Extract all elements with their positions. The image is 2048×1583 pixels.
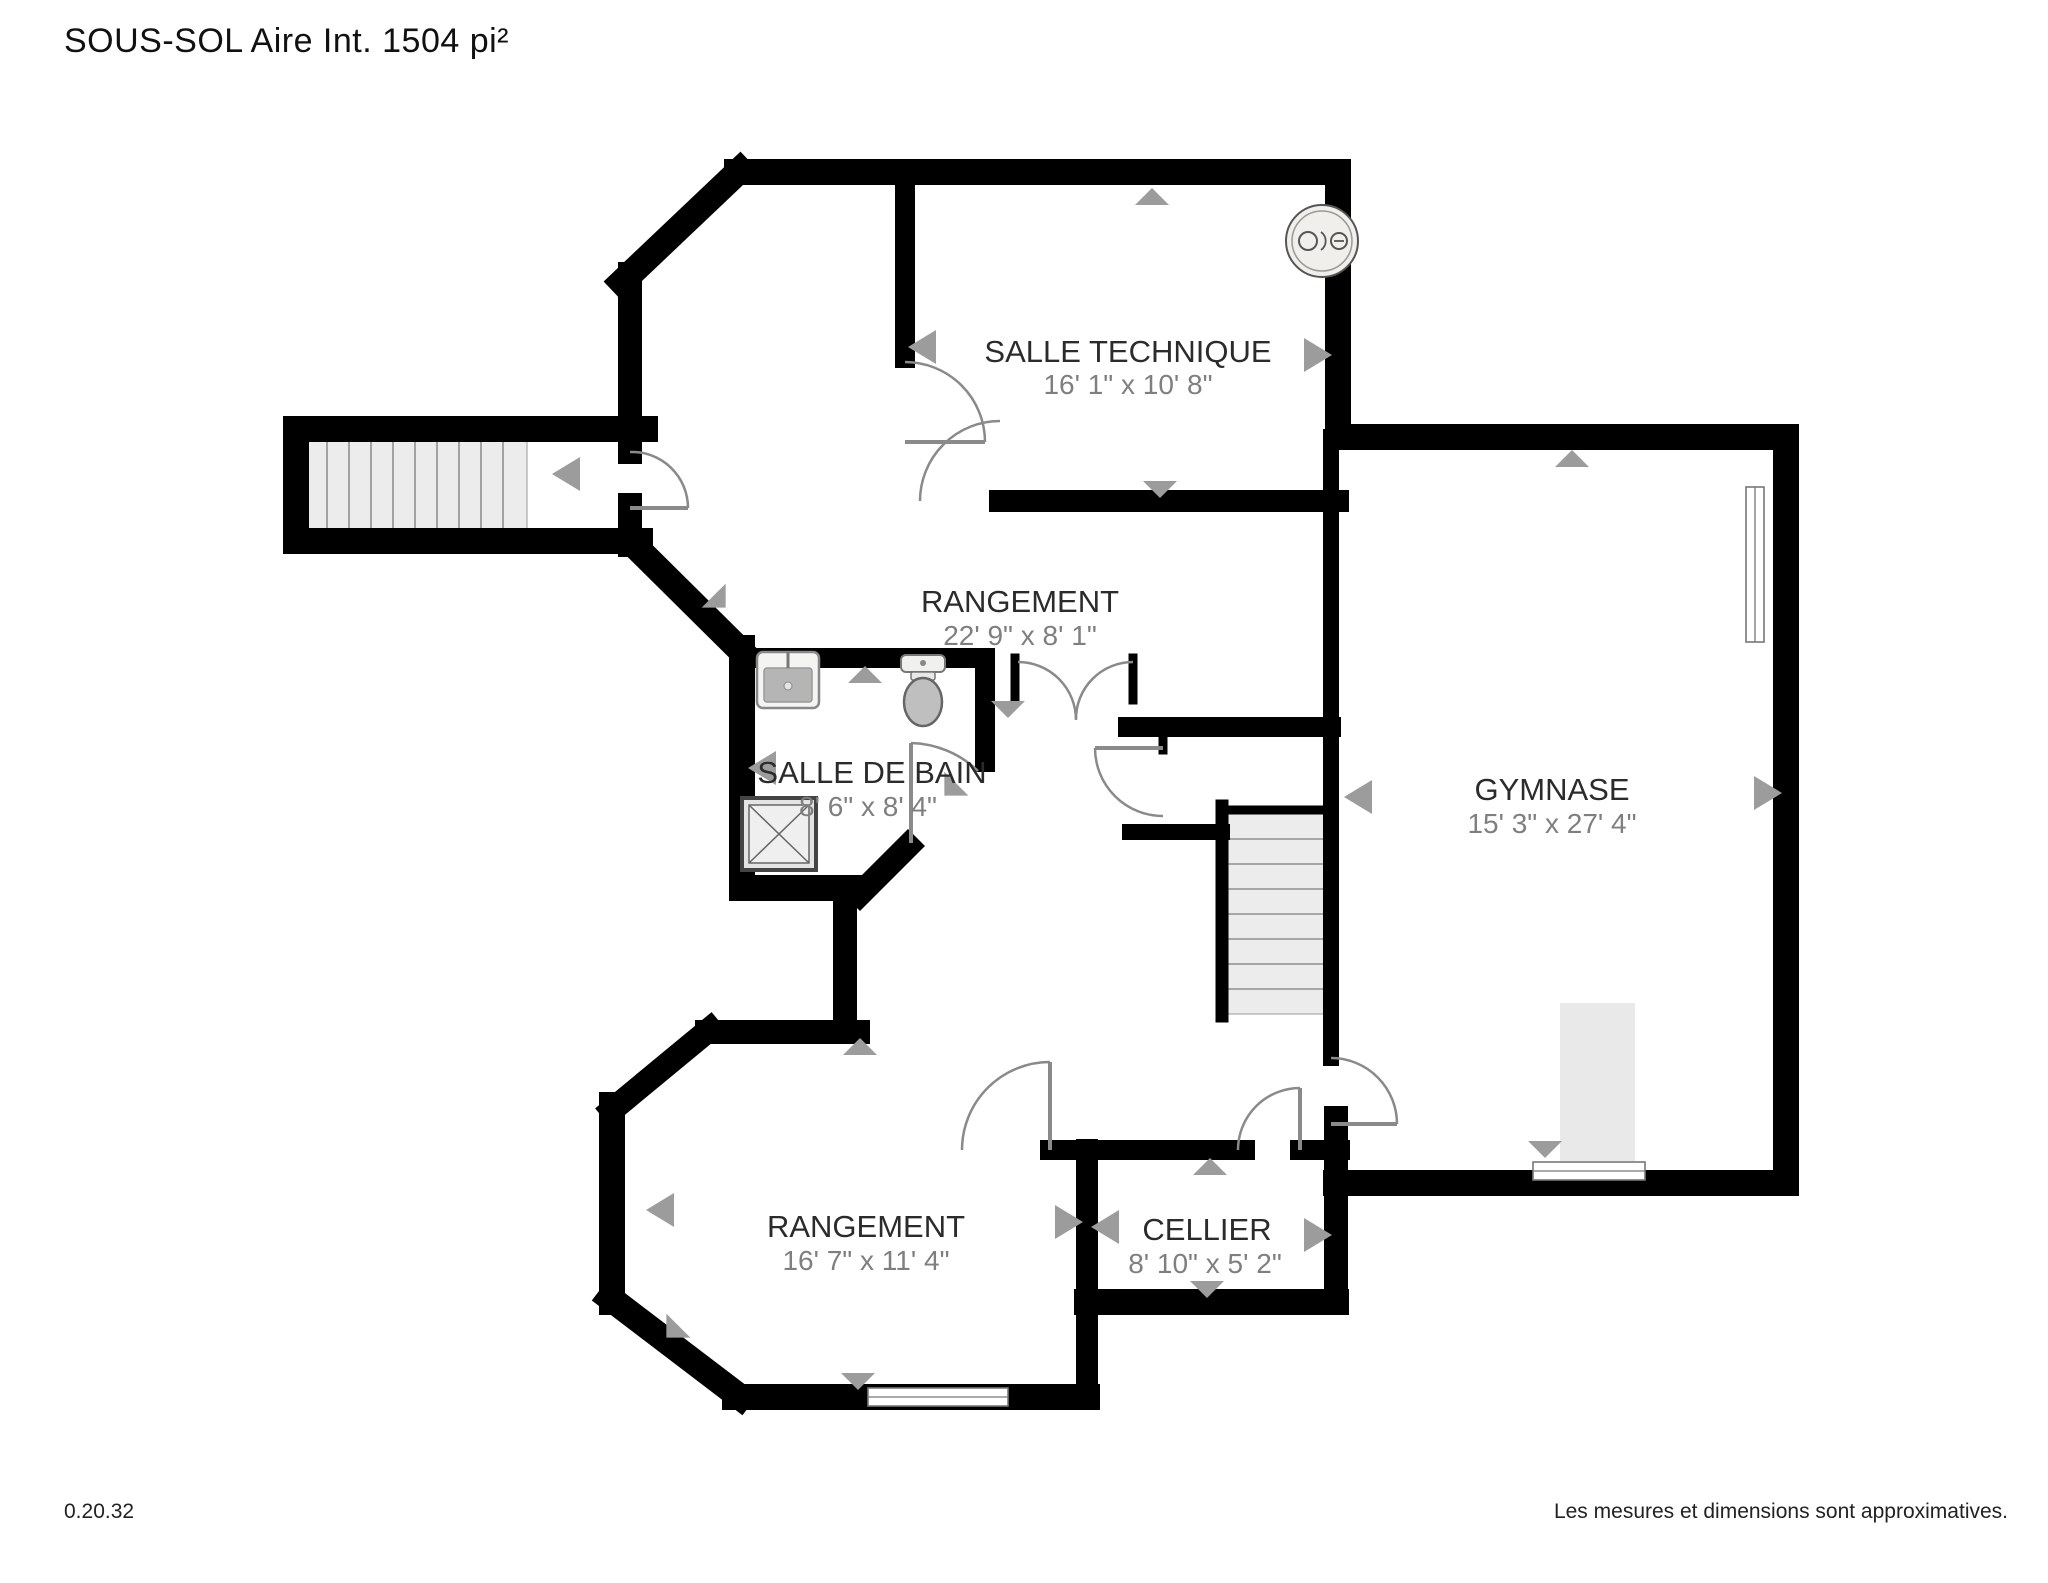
room-label-salle-technique: SALLE TECHNIQUE [984, 334, 1271, 369]
room-dims-gymnase: 15' 3" x 27' 4" [1467, 808, 1636, 839]
door-salle-technique-bottom [920, 421, 1000, 501]
marker-up-icon [1193, 1158, 1227, 1175]
water-heater-icon [1286, 205, 1358, 277]
room-label-rangement-bas: RANGEMENT [767, 1209, 965, 1244]
marker-up-icon [1555, 450, 1589, 467]
window-gym-bottom [1533, 1162, 1645, 1180]
room-dims-rangement-bas: 16' 7" x 11' 4" [782, 1245, 949, 1276]
window-gym-right [1746, 487, 1764, 642]
room-label-cellier: CELLIER [1142, 1212, 1271, 1247]
room-dims-salle-de-bain: 8' 6" x 8' 4" [799, 791, 937, 822]
marker-left-icon [646, 1193, 674, 1227]
door-rangement-bas [962, 1062, 1050, 1150]
room-dims-salle-technique: 16' 1" x 10' 8" [1043, 369, 1212, 400]
room-label-salle-de-bain: SALLE DE BAIN [757, 755, 986, 790]
marker-up-icon [1135, 188, 1169, 205]
marker-up-icon [848, 666, 882, 683]
door-salle-technique-left [905, 362, 985, 442]
room-dims-cellier: 8' 10" x 5' 2" [1128, 1248, 1282, 1279]
room-dims-rangement-haut: 22' 9" x 8' 1" [943, 620, 1097, 651]
marker-down-icon [1528, 1141, 1562, 1158]
marker-left-icon [1344, 780, 1372, 814]
gym-equipment [1560, 1003, 1635, 1161]
room-label-rangement-haut: RANGEMENT [921, 584, 1119, 619]
floor-plan: SALLE TECHNIQUE 16' 1" x 10' 8" RANGEMEN… [0, 0, 2048, 1583]
marker-down-icon [991, 701, 1025, 718]
marker-left-icon [552, 457, 580, 491]
room-label-gymnase: GYMNASE [1474, 772, 1629, 807]
sink-icon [757, 652, 819, 708]
stairs-entry [305, 437, 527, 529]
window-rangement-bottom [868, 1388, 1008, 1406]
door-double-corridor [1018, 662, 1133, 720]
room-labels: SALLE TECHNIQUE 16' 1" x 10' 8" RANGEMEN… [757, 334, 1636, 1279]
door-corridor-single [1095, 748, 1163, 816]
toilet-icon [901, 655, 945, 726]
stairs-central [1228, 814, 1331, 1014]
